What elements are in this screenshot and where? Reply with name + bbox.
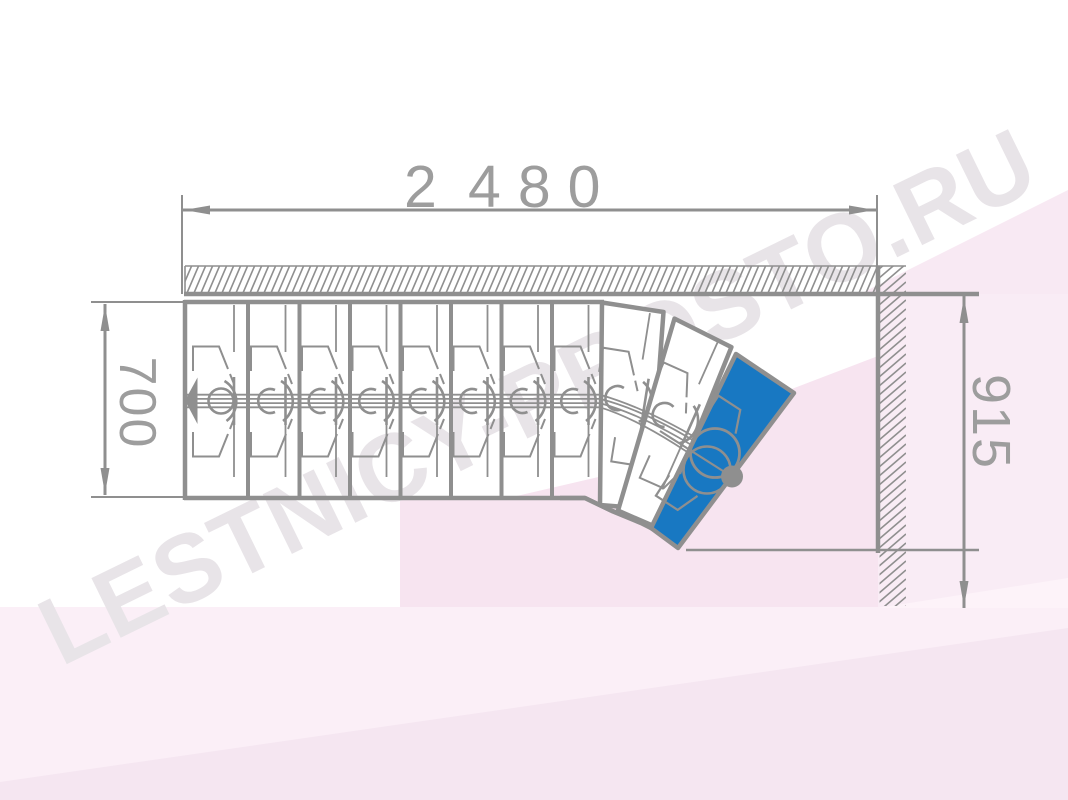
svg-text:700: 700 <box>108 357 166 450</box>
svg-text:2: 2 <box>404 154 447 220</box>
svg-text:480: 480 <box>468 154 617 220</box>
svg-text:915: 915 <box>961 374 1021 470</box>
